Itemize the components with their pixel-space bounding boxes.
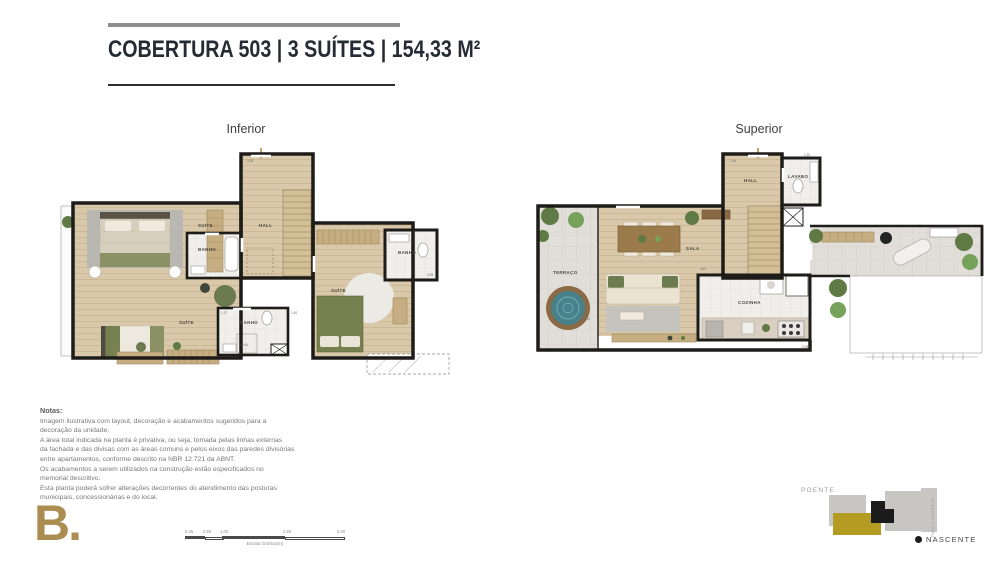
notes-line: A área total indicada na planta é privat… (40, 436, 298, 446)
nascente-label: NASCENTE (926, 535, 976, 544)
room-label-hall: HALL (744, 178, 757, 183)
scale-segment (285, 537, 345, 540)
stairs (748, 206, 782, 276)
plant (829, 279, 847, 297)
scale-tick: 1,00 (220, 529, 228, 534)
plant (685, 211, 699, 225)
room-label-lavabo: LAVABO (788, 174, 808, 179)
plant (830, 302, 846, 318)
edge-ticks (865, 354, 978, 360)
dim: 3,05 (427, 273, 433, 277)
console-table (702, 210, 730, 219)
header-top-rule (108, 23, 400, 27)
notes-line: da fachada e das divisas com as áreas co… (40, 445, 298, 455)
header-underline (108, 84, 395, 86)
plan-label-superior: Superior (709, 122, 809, 136)
room-label-terraco: TERRAÇO (553, 270, 578, 275)
notes-line: memorial descritivo. (40, 474, 298, 484)
plant (173, 342, 181, 350)
site-orientation: POENTE PAULO BARRETO NASCENTE (795, 483, 991, 555)
scale-tick: 2,50 (283, 529, 291, 534)
scale-segment (185, 536, 205, 539)
floorplan-inferior: SUÍTE HALL BANHO BANHO SUÍTE SUÍTE BANHO… (55, 148, 455, 383)
scale-segment (222, 536, 285, 539)
dining-table (618, 222, 680, 256)
room-label-suite-right: SUÍTE (331, 288, 346, 293)
plan-label-inferior: Inferior (196, 122, 296, 136)
sink (810, 162, 818, 182)
room-label-hall: HALL (259, 223, 272, 228)
room-label-banho-right: BANHO (398, 250, 416, 255)
dim: 3,33 (247, 159, 253, 163)
floorplan-superior: HALL LAVABO TERRAÇO SALA COZINHA 1,44 1,… (520, 148, 985, 383)
bathtub (225, 237, 238, 271)
notes-line: entre apartamentos, conforme descrito na… (40, 455, 298, 465)
nascente-dot-icon (915, 536, 922, 543)
graphic-scale: 0,25 0,50 1,00 2,50 5,00 Escala Gráfica(… (185, 529, 345, 547)
plant (955, 233, 973, 251)
room-label-sala: SALA (686, 246, 700, 251)
scale-tick: 5,00 (337, 529, 345, 534)
plant (809, 229, 823, 243)
shaft-x-box (783, 208, 803, 226)
bench (822, 232, 874, 242)
pouf (200, 283, 210, 293)
scale-tick: 0,25 (185, 529, 193, 534)
notes-line: Imagem ilustrativa com layout, decoração… (40, 417, 298, 427)
dim: 2,08 (802, 345, 808, 349)
shaft-x-box (271, 344, 288, 355)
toilet (793, 179, 803, 193)
notes-line: decoração da unidade. (40, 426, 298, 436)
dim: 4,61 (700, 267, 706, 271)
notes-block: Notas: Imagem ilustrativa com layout, de… (40, 406, 298, 503)
dim: 1,40 (291, 311, 297, 315)
armchair-green (214, 285, 236, 307)
bed-top-left (100, 212, 170, 267)
scale-caption: Escala Gráfica(m) (185, 541, 345, 546)
side-table (89, 266, 101, 278)
street-name: PAULO BARRETO (931, 489, 935, 537)
planter-box (930, 228, 958, 237)
sink (389, 234, 409, 242)
bed-right (317, 296, 363, 352)
page-title: COBERTURA 503 | 3 SUÍTES | 154,33 M² (108, 36, 480, 64)
brand-logo: B. (34, 498, 80, 548)
closet-top-left (207, 210, 223, 272)
hot-tub (546, 286, 590, 330)
room-label-banho-bottom: BANHO (240, 320, 258, 325)
dim: 1,20 (804, 153, 810, 157)
side-table-black (880, 232, 892, 244)
dim: 3,31 (584, 317, 590, 321)
sink (223, 344, 236, 352)
notes-line: Os acabamentos a serem utilizados na con… (40, 465, 298, 475)
closet-right (317, 230, 379, 244)
room-label-cozinha: COZINHA (738, 300, 761, 305)
side-table (169, 266, 181, 278)
dim: 1,44 (730, 159, 736, 163)
nascente-label-row: NASCENTE (915, 535, 976, 544)
room-label-banho-top: BANHO (198, 247, 216, 252)
coffee-table (620, 312, 644, 320)
notes-title: Notas: (40, 406, 298, 416)
plant (568, 212, 584, 228)
plant (541, 207, 559, 225)
room-label-suite-bottom: SUÍTE (179, 320, 194, 325)
notes-line: Esta planta poderá sofrer alterações dec… (40, 484, 298, 494)
room-label-suite-top: SUÍTE (198, 223, 213, 228)
desk-right (393, 298, 407, 324)
sofa (606, 274, 680, 304)
chair (136, 342, 146, 352)
toilet (418, 243, 428, 257)
tv-console (612, 334, 696, 342)
brochure-page: COBERTURA 503 | 3 SUÍTES | 154,33 M² Inf… (0, 0, 994, 571)
label-chuveiro: CHU. (241, 343, 249, 347)
plant (962, 254, 978, 270)
scale-tick: 0,50 (203, 529, 211, 534)
roof-void (850, 276, 982, 353)
dim: 1,17 (221, 311, 227, 315)
toilet (262, 311, 272, 325)
sink (191, 266, 205, 274)
